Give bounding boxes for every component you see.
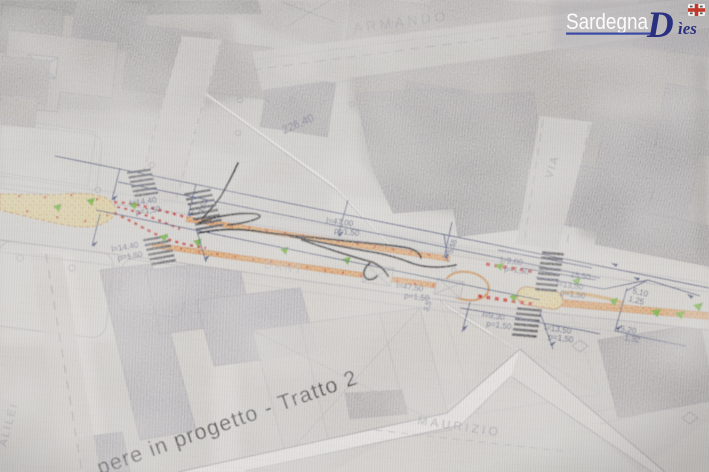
svg-text:Sardegna: Sardegna (566, 9, 649, 34)
svg-text:ìes: ìes (678, 19, 697, 38)
svg-text:D: D (646, 5, 674, 46)
